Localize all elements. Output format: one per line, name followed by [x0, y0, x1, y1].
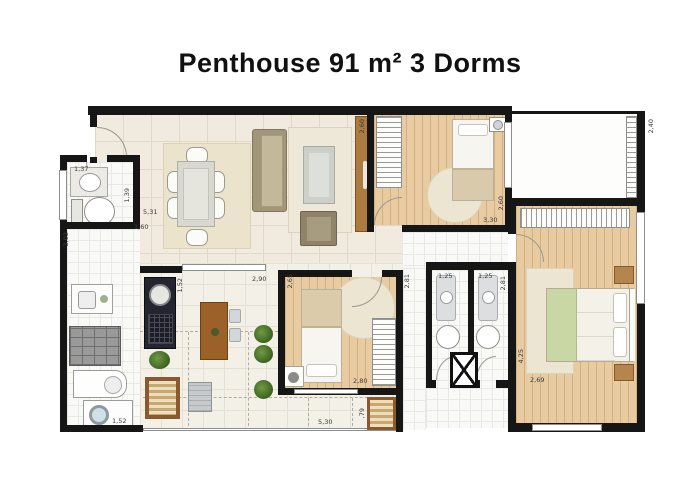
floorplan-image: Penthouse 91 m² 3 Dorms [0, 0, 700, 500]
faucet [100, 295, 108, 303]
sun-lounger [145, 377, 180, 419]
wall [367, 225, 374, 232]
hall-floor [403, 268, 426, 430]
toilet-tank [71, 199, 83, 224]
wall [468, 270, 474, 355]
dimension-label: 2,65 [287, 274, 294, 288]
pergola-line [308, 398, 309, 426]
plant [254, 380, 273, 399]
desk-chair [288, 372, 299, 383]
coffee-table [303, 146, 335, 204]
bar-table [200, 302, 228, 360]
window [294, 389, 358, 394]
wall [426, 380, 436, 388]
dimension-label: ,79 [359, 408, 366, 418]
bbq-grate [148, 314, 173, 344]
pergola-line [248, 332, 249, 426]
window [59, 170, 67, 220]
stove-cooktop [69, 326, 121, 366]
dimension-label: 3,02 [63, 232, 70, 246]
bbq-grill [149, 284, 171, 306]
sink-basin [440, 291, 453, 304]
wall [90, 106, 97, 127]
window [636, 212, 645, 304]
wall [278, 270, 285, 395]
window [504, 122, 512, 188]
double-bed [546, 288, 634, 362]
wall [396, 270, 403, 395]
dimension-label: 5,31 [143, 209, 157, 216]
pillow [613, 293, 627, 323]
pillow [613, 327, 627, 357]
window [626, 116, 637, 198]
sink-basin [482, 291, 495, 304]
dimension-label: 2,80 [353, 378, 367, 385]
wall [107, 155, 140, 162]
wall [396, 395, 403, 432]
table-knob [211, 328, 219, 336]
pillow [306, 364, 337, 377]
nightstand [614, 266, 634, 284]
wicker-chair [188, 382, 212, 412]
wall [140, 266, 182, 273]
single-bed [301, 289, 342, 383]
dimension-label: 2,60 [359, 119, 366, 133]
dimension-label: 2,81 [404, 274, 411, 288]
wall [133, 162, 140, 228]
wall [60, 425, 143, 432]
sheet-fold [577, 289, 615, 361]
wardrobe [376, 116, 402, 188]
wall [426, 262, 432, 388]
blanket [453, 168, 493, 200]
upper-right-area [512, 114, 637, 198]
toilet [436, 325, 460, 349]
dimension-label: 1,37 [74, 166, 88, 173]
vanity-sink [436, 275, 456, 321]
wall [426, 262, 516, 270]
headboard [629, 289, 635, 361]
dining-table [177, 161, 215, 227]
dimension-label: 2,69 [530, 377, 544, 384]
dimension-label: 5,30 [318, 419, 332, 426]
pillow [458, 124, 488, 136]
bbq-counter [144, 277, 176, 349]
duct-shaft [450, 352, 478, 388]
wall [496, 380, 508, 388]
dimension-label: 1,60 [134, 224, 148, 231]
wall [90, 157, 97, 163]
blanket [302, 290, 341, 328]
nightstand [614, 364, 634, 381]
stool [229, 309, 241, 323]
sink-basin [79, 173, 101, 192]
pouf-cushion [307, 217, 331, 241]
dimension-label: 1,25 [438, 273, 452, 280]
terrace-railing [143, 428, 396, 431]
dimension-label: 3,30 [483, 217, 497, 224]
ac-fan [493, 120, 503, 130]
wall [508, 198, 641, 206]
wall [367, 113, 374, 225]
sofa [252, 129, 287, 212]
dimension-label: 1,52 [112, 418, 126, 425]
wall [60, 222, 140, 229]
wall [508, 262, 516, 428]
dimension-label: 1,52 [177, 278, 184, 292]
armchair-pouf [300, 211, 337, 246]
wall [88, 106, 512, 115]
hall-floor [426, 388, 508, 428]
pass-through-counter [182, 264, 266, 271]
table-glass [183, 168, 209, 220]
floor-plan: 1,37 1,39 1,60 3,02 5,31 2,60 2,90 1,52 … [0, 0, 700, 500]
window [532, 424, 602, 431]
single-bed [452, 119, 494, 201]
dimension-label: 2,81 [500, 276, 507, 290]
sofa-cushions [261, 135, 283, 207]
wardrobe [520, 208, 630, 228]
washer-door [89, 405, 109, 425]
dimension-label: 4,25 [518, 349, 525, 363]
blanket [547, 289, 577, 361]
dimension-label: 2,40 [648, 119, 655, 133]
wall [402, 225, 512, 232]
toilet [476, 325, 500, 349]
wardrobe [372, 318, 396, 386]
stool [229, 328, 241, 342]
wall [512, 111, 645, 114]
plant [149, 351, 170, 369]
laundry-tank [73, 370, 127, 398]
plant [254, 325, 273, 343]
coffee-table-top [309, 153, 329, 197]
tank-basin [104, 376, 122, 394]
dimension-label: 1,25 [478, 273, 492, 280]
dimension-label: 1,39 [124, 188, 131, 202]
pergola-line [352, 398, 353, 426]
dimension-label: 2,60 [498, 196, 505, 210]
kitchen-sink [71, 284, 113, 314]
vanity-sink [478, 275, 498, 321]
sink-basin [78, 291, 96, 309]
sun-lounger [367, 397, 396, 430]
dining-chair [186, 229, 208, 246]
plant [254, 345, 273, 363]
dimension-label: 2,90 [252, 276, 266, 283]
